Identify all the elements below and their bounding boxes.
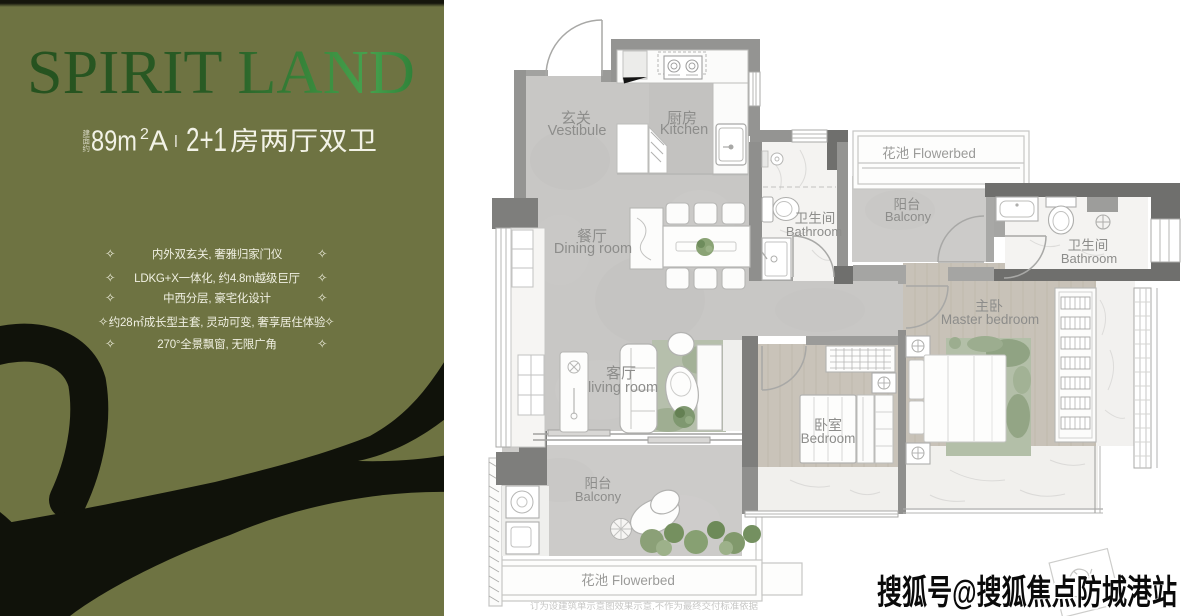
svg-text:Bathroom: Bathroom (1061, 251, 1117, 266)
svg-text:Bathroom: Bathroom (786, 224, 842, 239)
svg-text:Kitchen: Kitchen (660, 122, 708, 138)
svg-text:订为设建筑单示意图效果示意,不作为最终交付标准依据: 订为设建筑单示意图效果示意,不作为最终交付标准依据 (530, 601, 759, 611)
svg-text:Balcony: Balcony (575, 489, 622, 504)
svg-text:搜狐号@搜狐焦点防城港站: 搜狐号@搜狐焦点防城港站 (877, 574, 1177, 612)
svg-text:Bedroom: Bedroom (801, 431, 856, 446)
svg-text:living room: living room (588, 380, 658, 396)
svg-text:Vestibule: Vestibule (548, 123, 607, 139)
svg-text:花池 Flowerbed: 花池 Flowerbed (882, 146, 976, 161)
svg-text:Dining room: Dining room (554, 241, 632, 257)
svg-text:Balcony: Balcony (885, 209, 932, 224)
svg-text:花池 Flowerbed: 花池 Flowerbed (581, 573, 675, 588)
svg-text:Master bedroom: Master bedroom (941, 312, 1039, 327)
